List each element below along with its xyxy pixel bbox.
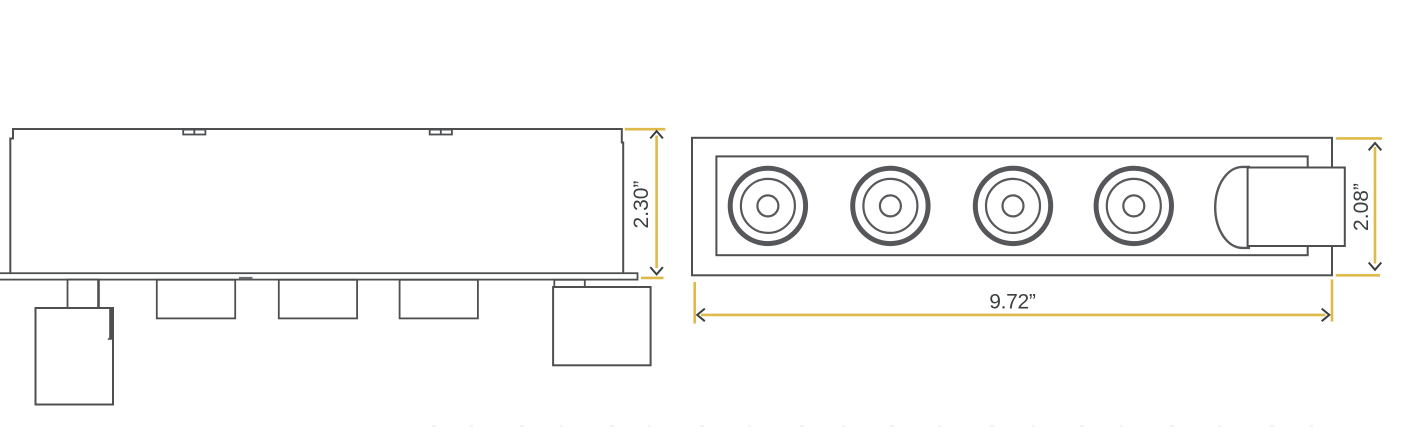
svg-text:9.72”: 9.72”	[989, 290, 1036, 313]
svg-text:2.08”: 2.08”	[1350, 183, 1373, 231]
svg-text:2.30”: 2.30”	[630, 181, 653, 229]
